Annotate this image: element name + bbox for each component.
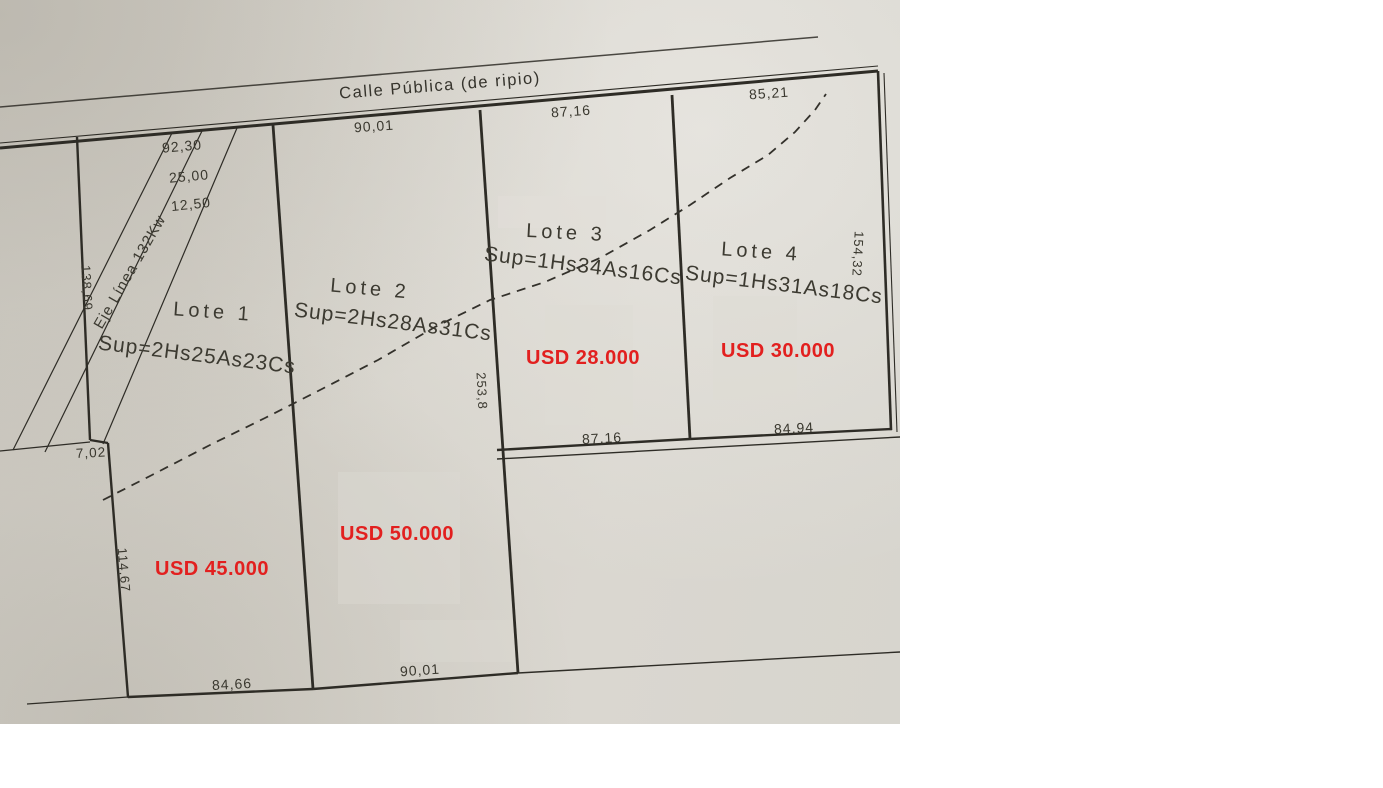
dim-east-lote2: 253,8 (475, 372, 490, 410)
dim-top-lote1: 92,30 (161, 137, 202, 154)
scanned-paper: Calle Pública (de ripio) 92,30 25,00 12,… (0, 0, 900, 724)
dim-easement-half: 12,50 (170, 195, 211, 213)
dim-mid-lote3: 87,16 (582, 430, 623, 446)
dim-mid-lote4: 84,94 (774, 420, 815, 436)
lote1-title: Lote 1 (173, 299, 254, 325)
dim-west-upper: 138,69 (79, 265, 94, 311)
dim-west-lower: 114,67 (116, 547, 133, 593)
dim-top-lote2: 90,01 (354, 118, 395, 135)
survey-plan-screenshot: Calle Pública (de ripio) 92,30 25,00 12,… (0, 0, 1383, 788)
dim-west-jog: 7,02 (76, 445, 107, 460)
dim-top-lote3: 87,16 (551, 103, 592, 120)
lote3-title: Lote 3 (526, 221, 607, 245)
lote1-price: USD 45.000 (155, 559, 269, 579)
dim-bottom-lote1: 84,66 (212, 676, 253, 692)
lote1-lote2-divider (273, 125, 313, 689)
dim-top-lote4: 85,21 (749, 85, 790, 102)
dim-bottom-lote2: 90,01 (400, 662, 441, 679)
lote4-price: USD 30.000 (721, 341, 835, 361)
west-boundary-jog (90, 440, 108, 443)
dim-east-lote4: 154,32 (850, 231, 865, 277)
lote2-price: USD 50.000 (340, 524, 454, 544)
neighbor-line-southwest (27, 697, 128, 704)
lower-parcel-south (518, 652, 900, 673)
east-boundary (878, 71, 891, 430)
lote4-title: Lote 4 (721, 239, 802, 265)
survey-linework (0, 0, 900, 724)
lote3-price: USD 28.000 (526, 348, 640, 368)
dim-easement-width: 25,00 (168, 167, 209, 184)
lower-parallel-line (497, 437, 900, 459)
east-boundary-outer (884, 73, 897, 432)
